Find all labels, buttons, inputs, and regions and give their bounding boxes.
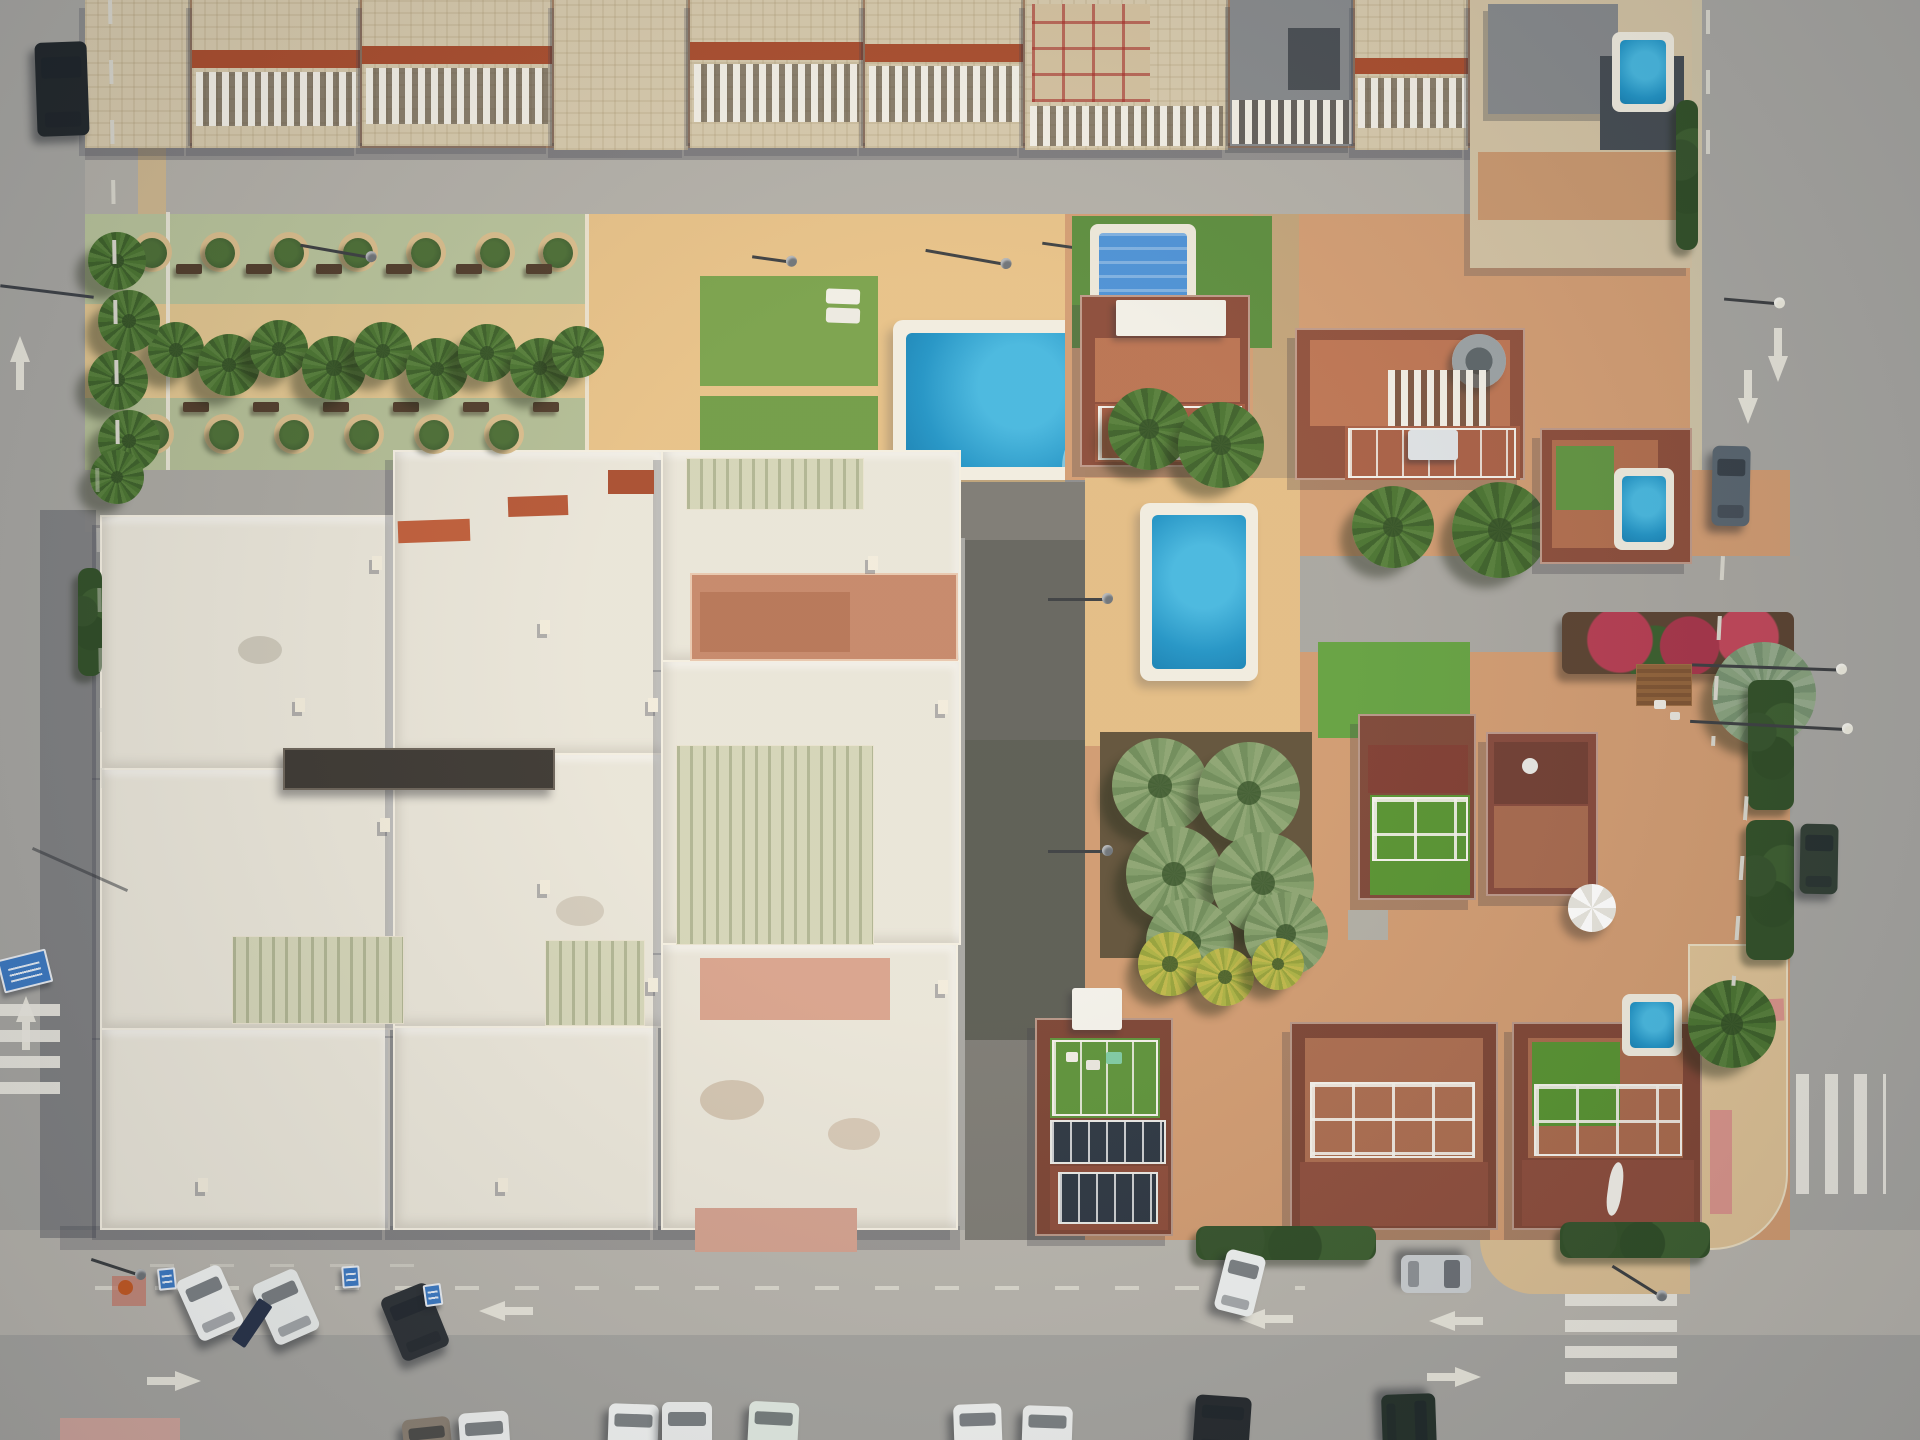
- complex-module: [393, 1026, 658, 1230]
- olive-tree: [480, 238, 510, 268]
- road-top-street: [85, 148, 1540, 216]
- complex-roof-tile: [608, 470, 654, 494]
- palm-tree: [1688, 980, 1776, 1068]
- bldg-gap: [550, 0, 554, 146]
- palm-tree: [1178, 402, 1264, 488]
- complex-skylight: [676, 745, 874, 945]
- road-arrow-left: [1429, 1311, 1455, 1331]
- car: [1799, 824, 1838, 895]
- bldg-gap: [1226, 0, 1230, 146]
- bldg-gap: [1021, 0, 1025, 146]
- olive-tree: [489, 420, 519, 450]
- roof-chair: [1086, 1060, 1100, 1070]
- car: [1711, 446, 1750, 527]
- villa-terrace: [1494, 806, 1588, 888]
- solar-heater: [1408, 430, 1458, 460]
- bench: [526, 264, 552, 274]
- bench: [246, 264, 272, 274]
- palm-tree: [1196, 948, 1254, 1006]
- olive-tree: [411, 238, 441, 268]
- bench: [316, 264, 342, 274]
- complex-roof-tile: [508, 495, 569, 517]
- aerial-photo-residential-area: [0, 0, 1920, 1440]
- villa-cage-railing: [1372, 797, 1468, 861]
- solar-panels: [1058, 1172, 1158, 1224]
- bldg-pergola: [196, 72, 356, 126]
- complex-salmon-patio: [700, 958, 890, 1020]
- street-lamp: [1048, 598, 1108, 601]
- palm-tree: [1352, 486, 1434, 568]
- street-name-sign: [0, 948, 53, 993]
- olive-tree: [274, 238, 304, 268]
- bldg-gap: [861, 0, 865, 146]
- olive-tree: [209, 420, 239, 450]
- complex-roof-tile: [398, 519, 471, 543]
- bench: [393, 402, 419, 412]
- bench: [323, 402, 349, 412]
- road-arrow-down: [1768, 356, 1788, 382]
- car: [458, 1410, 512, 1440]
- roof-vent: [868, 556, 878, 570]
- roof-vent: [648, 698, 658, 712]
- roof-vent: [380, 818, 390, 832]
- parking-sign: [423, 1283, 444, 1307]
- complex-skylight: [686, 458, 864, 510]
- villa-roof: [1368, 745, 1468, 793]
- villa-lower-terrace: [1300, 1162, 1488, 1226]
- palm-tree: [458, 324, 516, 382]
- road-arrow-down: [1738, 398, 1758, 424]
- palm-tree: [1138, 932, 1202, 996]
- roof-vent: [372, 556, 382, 570]
- villa-awning: [1116, 300, 1226, 336]
- bldg-corner-hedge: [1676, 100, 1698, 250]
- villa-roof: [1494, 742, 1588, 804]
- palm-tree: [1252, 938, 1304, 990]
- bldg-redband: [865, 44, 1023, 62]
- bldg-pergola: [1358, 78, 1466, 128]
- bldg-redband: [1355, 58, 1468, 74]
- palm-tree: [98, 290, 160, 352]
- bench: [533, 402, 559, 412]
- car: [662, 1402, 712, 1440]
- crosswalk: [0, 1004, 60, 1102]
- olive-tree: [349, 420, 379, 450]
- bldg-redband: [690, 42, 863, 60]
- car: [953, 1403, 1003, 1440]
- car: [607, 1403, 659, 1440]
- garden-pad: [1348, 910, 1388, 940]
- lane-dash-right: [1706, 10, 1710, 160]
- villa-canopy: [1072, 988, 1122, 1030]
- car: [1401, 1255, 1471, 1293]
- parking-line: [150, 1264, 420, 1267]
- deck-chair: [1670, 712, 1680, 720]
- umbrella: [1568, 884, 1616, 932]
- bench: [463, 402, 489, 412]
- parking-sign: [341, 1265, 360, 1288]
- roof-vent: [498, 1178, 508, 1192]
- sunbed: [826, 307, 861, 323]
- car: [1192, 1394, 1252, 1440]
- bldg: [554, 0, 688, 150]
- pool-mid-water: [1622, 476, 1666, 542]
- bldg-pergola: [869, 66, 1019, 122]
- hedge-row: [1748, 680, 1794, 810]
- bldg-redband: [362, 46, 552, 64]
- bldg-gap: [1351, 0, 1355, 146]
- solar-panels: [1050, 1120, 1166, 1164]
- crosswalk: [1565, 1294, 1677, 1398]
- car: [1381, 1393, 1437, 1440]
- olive-tree: [279, 420, 309, 450]
- roof-vent: [540, 880, 550, 894]
- complex-spine: [283, 748, 555, 790]
- palm-tree: [1198, 742, 1300, 844]
- olive-tree: [205, 238, 235, 268]
- car: [401, 1416, 455, 1440]
- hedge-row: [1746, 820, 1794, 960]
- road-arrow-right: [175, 1371, 201, 1391]
- bldg-gap: [1466, 0, 1470, 146]
- complex-module: [100, 1028, 390, 1230]
- bldg-gap: [358, 0, 362, 146]
- palm-tree: [1112, 738, 1208, 834]
- villa-railing: [1534, 1084, 1682, 1156]
- roof-vent: [648, 978, 658, 992]
- bench: [183, 402, 209, 412]
- pink-kerb-patch: [60, 1418, 180, 1440]
- bldg-redgrid-roof: [1032, 4, 1150, 102]
- bldg-corner-patio: [1478, 152, 1683, 220]
- roof-vent: [198, 1178, 208, 1192]
- satellite-dish: [1522, 758, 1538, 774]
- roof-vent: [938, 980, 948, 994]
- overhead-cable: [0, 284, 94, 298]
- sunbed: [826, 288, 861, 304]
- complex-module: [100, 515, 395, 770]
- bldg-gap: [686, 0, 690, 146]
- palm-tree: [88, 232, 146, 290]
- complex-skylight: [545, 940, 645, 1026]
- olive-tree: [419, 420, 449, 450]
- roof-vent: [938, 700, 948, 714]
- palm-tree: [1108, 388, 1190, 470]
- hedge-row: [1196, 1226, 1376, 1260]
- bench: [386, 264, 412, 274]
- pool-se-water: [1630, 1002, 1674, 1048]
- palm-tree: [250, 320, 308, 378]
- bulb-pink-stripe: [1710, 1110, 1732, 1214]
- complex-court-floor: [700, 592, 850, 652]
- roof-chair: [1066, 1052, 1078, 1062]
- car: [34, 41, 89, 137]
- villa-turf: [1556, 446, 1614, 510]
- bldg-pergola: [694, 64, 859, 122]
- bldg-roof-unit: [1288, 28, 1340, 90]
- villa-pergola: [1388, 370, 1490, 426]
- car: [1021, 1405, 1073, 1440]
- roof-vent: [540, 620, 550, 634]
- bldg-pergola: [366, 68, 548, 124]
- roof-vent: [295, 698, 305, 712]
- road-arrow-up: [10, 336, 30, 362]
- bldg-corner-grayroof: [1488, 4, 1618, 114]
- bldg-redband: [192, 50, 360, 68]
- palm-tree: [354, 322, 412, 380]
- street-lamp: [1048, 850, 1108, 853]
- palm-tree: [1452, 482, 1548, 578]
- road-arrow-left: [479, 1301, 505, 1321]
- bldg-pergola: [1232, 100, 1352, 144]
- bench: [456, 264, 482, 274]
- hedge-row: [1560, 1222, 1710, 1258]
- bldg-gap: [188, 0, 192, 146]
- complex-salmon-walk: [695, 1208, 857, 1252]
- crosswalk: [1796, 1074, 1886, 1194]
- car: [746, 1401, 799, 1440]
- pool-ne-water: [1620, 40, 1666, 104]
- bldg: [85, 0, 190, 148]
- complex-skylight: [232, 936, 404, 1024]
- pool2-water: [1152, 515, 1246, 669]
- roof-table: [1106, 1052, 1122, 1064]
- bldg-pergola: [1030, 106, 1223, 146]
- deck-chair: [1654, 700, 1666, 709]
- palm-tree: [552, 326, 604, 378]
- parking-sign: [157, 1267, 177, 1291]
- street-lamp: [1724, 298, 1780, 306]
- bench: [176, 264, 202, 274]
- bench: [253, 402, 279, 412]
- villa-railing: [1310, 1082, 1475, 1158]
- street-bin: [118, 1280, 133, 1295]
- road-arrow-right: [1455, 1367, 1481, 1387]
